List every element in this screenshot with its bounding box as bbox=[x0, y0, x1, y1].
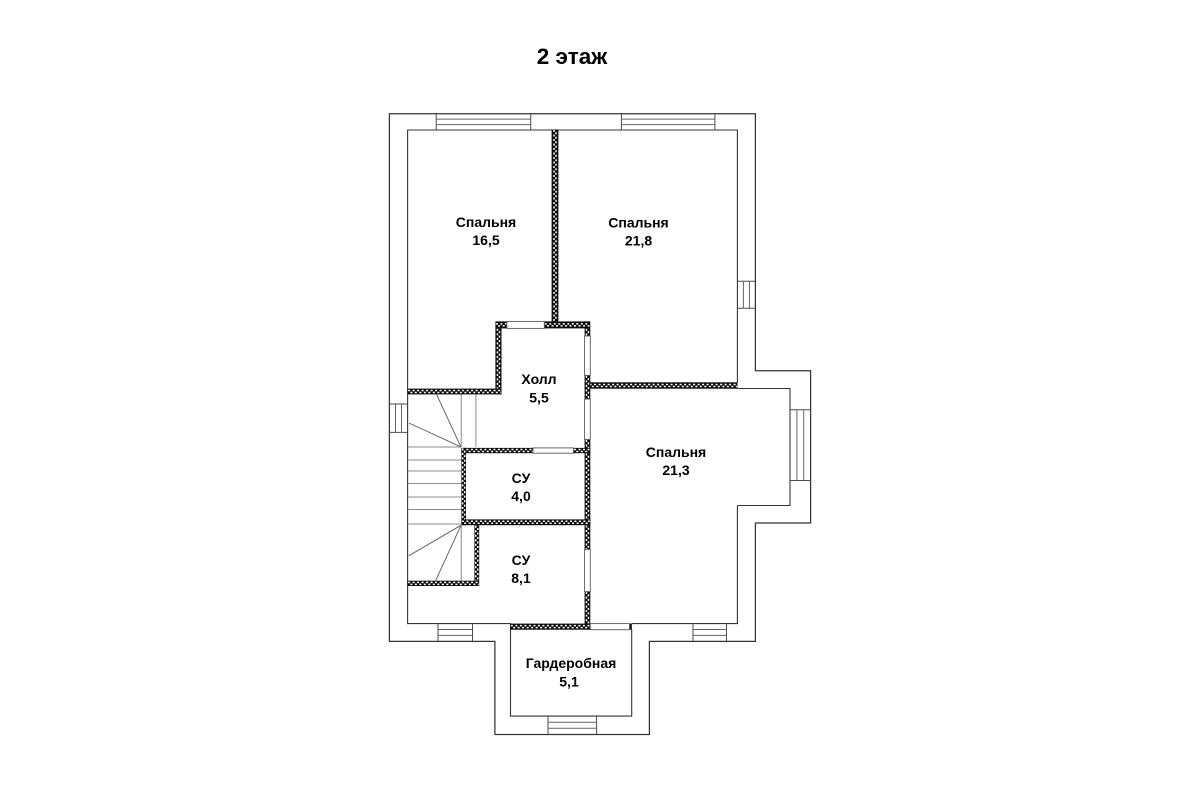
svg-text:Гардеробная: Гардеробная bbox=[526, 655, 617, 671]
svg-text:Спальня: Спальня bbox=[646, 444, 706, 460]
svg-text:Спальня: Спальня bbox=[608, 215, 668, 231]
svg-text:5,1: 5,1 bbox=[559, 673, 579, 689]
svg-text:16,5: 16,5 bbox=[472, 232, 499, 248]
svg-text:Спальня: Спальня bbox=[456, 214, 516, 230]
svg-text:СУ: СУ bbox=[512, 470, 531, 486]
svg-text:5,5: 5,5 bbox=[529, 390, 549, 406]
svg-text:8,1: 8,1 bbox=[511, 570, 531, 586]
svg-text:2 этаж: 2 этаж bbox=[537, 44, 608, 69]
svg-text:21,8: 21,8 bbox=[625, 233, 652, 249]
svg-text:4,0: 4,0 bbox=[511, 488, 531, 504]
svg-text:21,3: 21,3 bbox=[662, 462, 689, 478]
svg-text:Холл: Холл bbox=[521, 371, 556, 387]
svg-text:СУ: СУ bbox=[512, 552, 531, 568]
